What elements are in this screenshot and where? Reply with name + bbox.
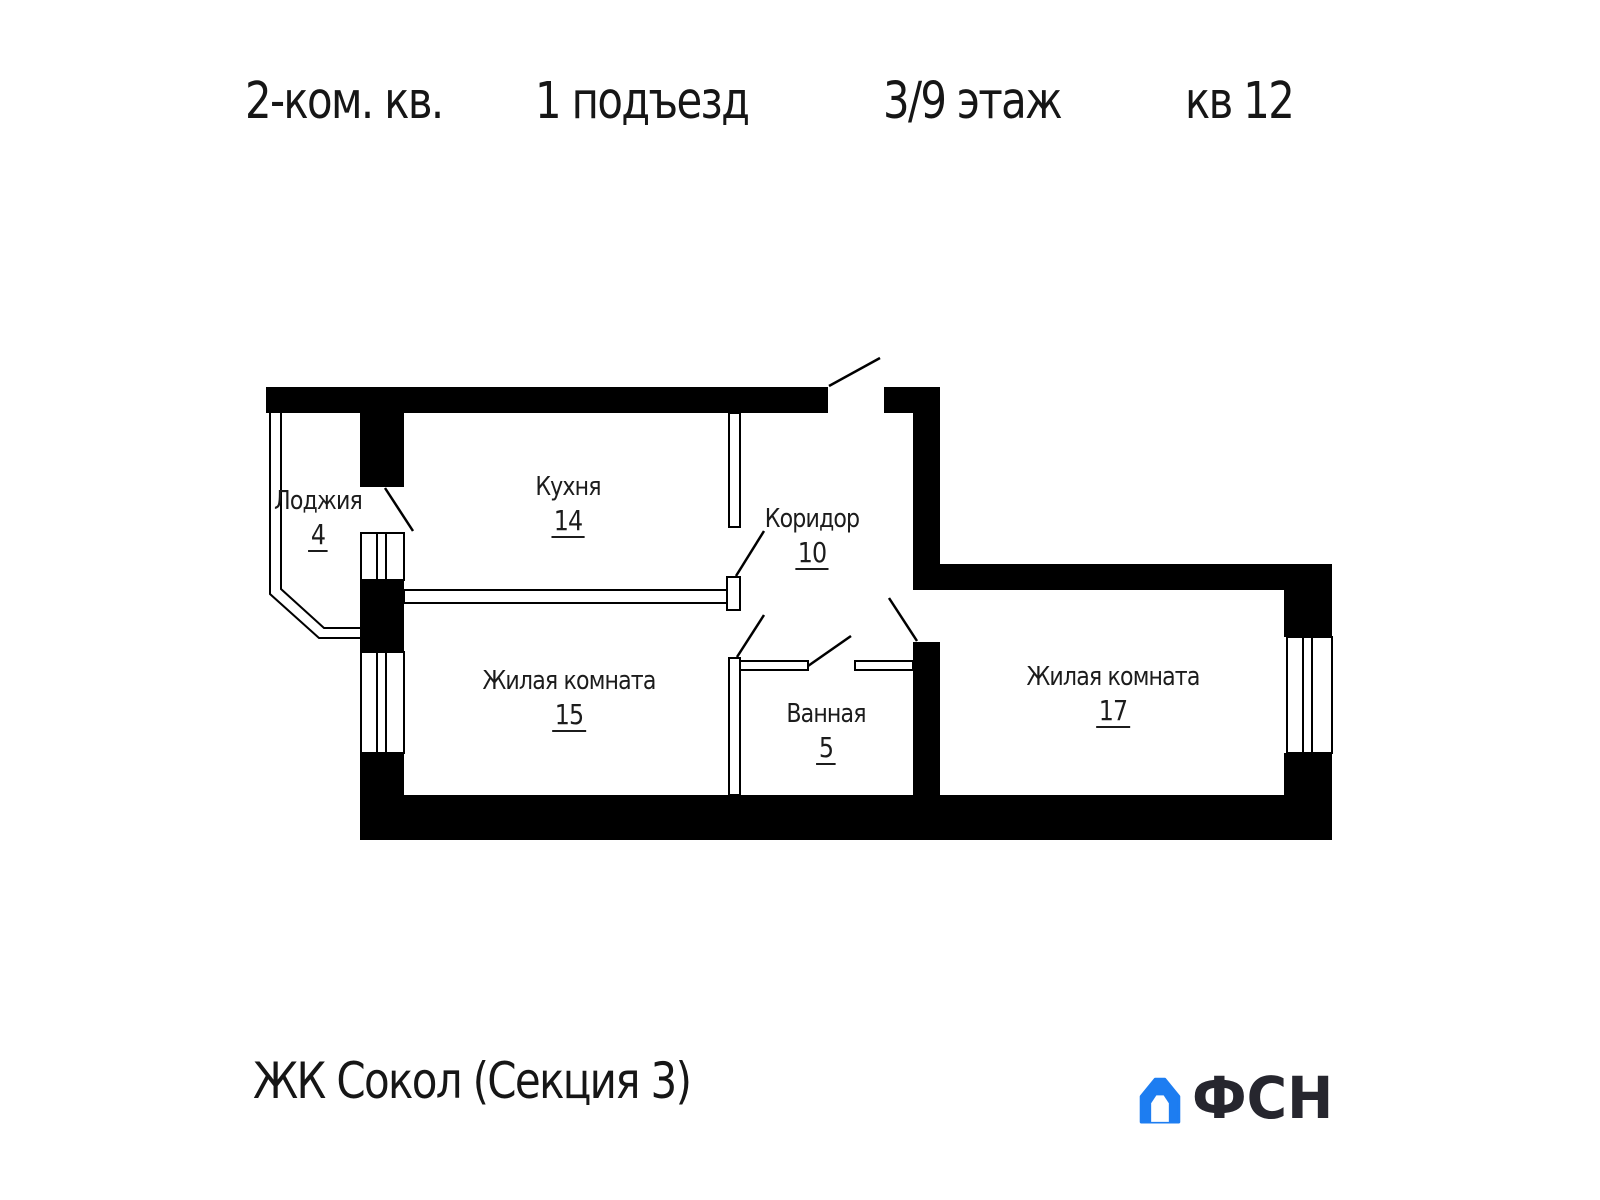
- door-kitchen: [736, 531, 764, 576]
- room-label-living-room-17: Жилая комната 17: [1026, 664, 1199, 728]
- room-label-loggia: Лоджия 4: [274, 488, 362, 552]
- room-label-corridor: Коридор 10: [765, 506, 859, 570]
- room-name: Жилая комната: [482, 668, 655, 694]
- door-room15: [737, 615, 764, 657]
- window-left-upper: [361, 533, 404, 580]
- door-entrance: [829, 358, 880, 386]
- room-name: Ванная: [786, 701, 865, 727]
- room-area: 14: [551, 506, 585, 538]
- wall-left-upper-block: [360, 410, 404, 487]
- developer-logo: ФСН: [1134, 1072, 1341, 1124]
- wall-bathroom-room17: [913, 642, 940, 795]
- floor-plan-page: 2-ком. кв. 1 подъезд 3/9 этаж кв 12: [0, 0, 1600, 1200]
- partition-bathroom-top-left: [740, 661, 808, 670]
- partition-kitchen-room15: [404, 590, 728, 603]
- partition-bathroom-top-right: [855, 661, 913, 670]
- partition-kitchen-corridor: [729, 413, 740, 527]
- door-room17: [889, 598, 917, 641]
- floor-plan-drawing: [0, 0, 1600, 1200]
- logo-text: ФСН: [1192, 1072, 1333, 1124]
- room-area: 5: [816, 733, 835, 765]
- room-area: 10: [795, 538, 829, 570]
- complex-name-label: ЖК Сокол (Секция 3): [253, 1052, 690, 1110]
- room-name: Коридор: [765, 506, 859, 532]
- wall-right-upper-corner: [1284, 590, 1332, 637]
- room-name: Кухня: [535, 474, 600, 500]
- wall-bottom: [360, 795, 1332, 840]
- wall-corridor-right-column: [913, 413, 940, 590]
- window-left-lower: [361, 652, 404, 753]
- room-name: Жилая комната: [1026, 664, 1199, 690]
- room-area: 15: [552, 700, 586, 732]
- room-area: 4: [308, 520, 327, 552]
- room-label-bathroom: Ванная 5: [786, 701, 865, 765]
- room-label-living-room-15: Жилая комната 15: [482, 668, 655, 732]
- room-name: Лоджия: [274, 488, 362, 514]
- window-room17-right: [1287, 637, 1332, 753]
- door-bathroom: [808, 636, 851, 666]
- house-icon: [1134, 1072, 1186, 1124]
- door-loggia: [385, 488, 413, 531]
- wall-left-middle-block: [360, 580, 404, 652]
- wall-left-lower-block: [360, 753, 404, 797]
- wall-room17-top: [913, 564, 1332, 590]
- partition-bathroom-left: [729, 658, 740, 795]
- room-label-kitchen: Кухня 14: [535, 474, 600, 538]
- room-area: 17: [1096, 696, 1130, 728]
- wall-top-right-block: [884, 387, 940, 413]
- wall-top: [266, 387, 828, 413]
- wall-right-lower-corner: [1284, 753, 1332, 797]
- partition-end-cap: [727, 577, 740, 610]
